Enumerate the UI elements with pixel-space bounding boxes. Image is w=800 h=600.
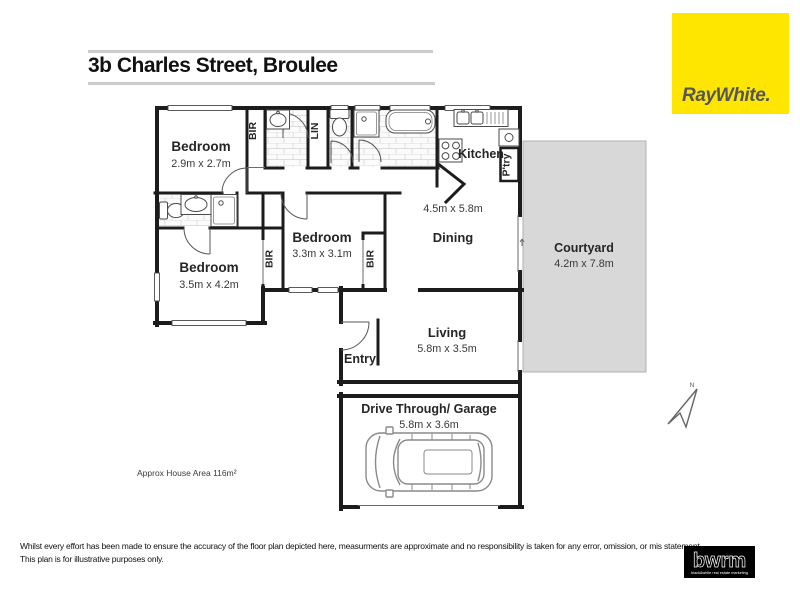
- bedroom3-dims: 3.3m x 3.1m: [292, 248, 351, 260]
- lin-label: LIN: [309, 123, 321, 140]
- bedroom2-label: Bedroom: [179, 260, 238, 275]
- bwrm-logo-text: bwrm: [693, 550, 746, 572]
- bir3-label: BIR: [365, 250, 377, 269]
- bedroom1-label: Bedroom: [171, 139, 230, 154]
- disclaimer-line-2: This plan is for illustrative purposes o…: [20, 553, 720, 566]
- living-dims: 5.8m x 3.5m: [417, 343, 476, 355]
- dining-label: Dining: [433, 230, 473, 245]
- bir2-label: BIR: [264, 250, 276, 269]
- dining-dims: 4.5m x 5.8m: [423, 203, 482, 215]
- bedroom1-dims: 2.9m x 2.7m: [171, 158, 230, 170]
- floor-plan: Courtyard 4.2m x 7.8m: [0, 0, 800, 600]
- bwrm-logo: bwrm black&white real estate marketing: [684, 546, 755, 578]
- courtyard-label: Courtyard: [554, 241, 614, 255]
- ensuite-vanity-icon: [181, 195, 211, 215]
- disclaimer: Whilst every effort has been made to ens…: [20, 540, 720, 565]
- bedroom3-label: Bedroom: [292, 230, 351, 245]
- garage-dims: 5.8m x 3.6m: [399, 419, 458, 431]
- garage-label: Drive Through/ Garage: [361, 402, 496, 416]
- kitchen-sink-icon: [454, 110, 508, 127]
- kitchen-label: Kitchen: [458, 147, 504, 161]
- car-icon: [366, 427, 492, 497]
- bathtub-icon: [386, 110, 435, 133]
- north-arrow-icon: N: [668, 382, 697, 427]
- courtyard-area: [523, 141, 646, 372]
- bedroom2-dims: 3.5m x 4.2m: [179, 279, 238, 291]
- bir1-label: BIR: [247, 122, 259, 141]
- north-label: N: [690, 382, 695, 389]
- living-label: Living: [428, 325, 466, 340]
- pantry-label: P'try: [501, 153, 513, 176]
- oven-icon: [499, 129, 519, 146]
- bwrm-tagline: black&white real estate marketing: [691, 571, 748, 575]
- bwrm-logo-art: bwrm black&white real estate marketing: [684, 546, 755, 578]
- disclaimer-line-1: Whilst every effort has been made to ens…: [20, 540, 720, 553]
- entry-label: Entry: [344, 352, 376, 366]
- vanity-sink-icon: [267, 110, 290, 129]
- house-area-note: Approx House Area 116m²: [137, 468, 237, 478]
- courtyard-dims: 4.2m x 7.8m: [554, 258, 613, 270]
- shower-icon: [354, 110, 379, 137]
- room-courtyard: Courtyard 4.2m x 7.8m: [523, 141, 646, 372]
- ensuite-shower-icon: [211, 195, 237, 227]
- floorplan-page: 3b Charles Street, Broulee RayWhite. Cou…: [0, 0, 800, 600]
